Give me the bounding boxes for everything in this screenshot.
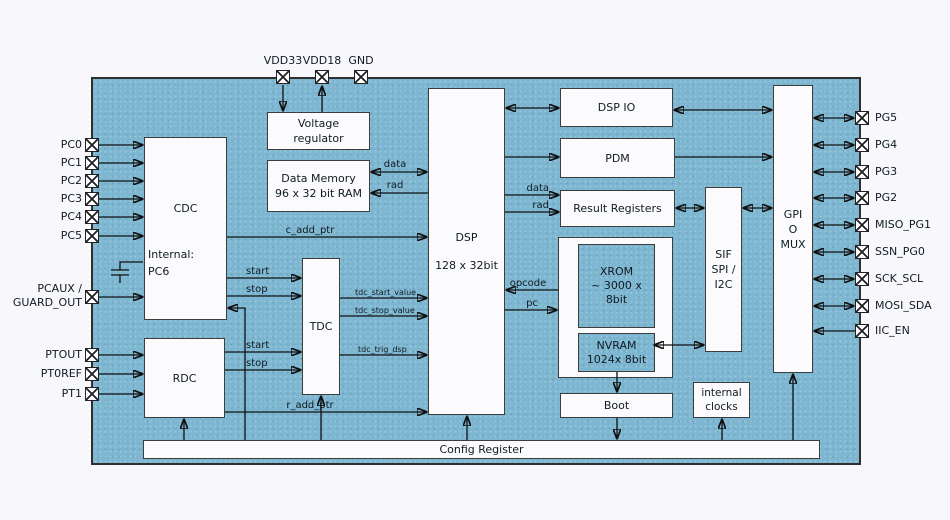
pin-box-pc4-icon (85, 210, 99, 224)
pin-box-pc5-icon (85, 229, 99, 243)
pin-label-pg2: PG2 (875, 191, 897, 205)
pin-box-pg5-icon (855, 111, 869, 125)
signal-cdc-stop: stop (246, 284, 268, 295)
boot-block: Boot (560, 393, 673, 418)
gpio-mux-label-1: GPI (784, 207, 802, 222)
dsp-block: DSP 128 x 32bit (428, 88, 505, 415)
pin-label-ssn-pg0: SSN_PG0 (875, 245, 925, 259)
pin-label-pcaux-2: GUARD_OUT (2, 296, 82, 310)
sif-label-1: SIF (715, 247, 732, 262)
config-register-block: Config Register (143, 440, 820, 459)
pin-box-pcaux-icon (85, 290, 99, 304)
signal-tdc-trig-dsp: tdc_trig_dsp (358, 345, 407, 354)
pin-box-ptout-icon (85, 348, 99, 362)
cdc-block: CDC Internal: PC6 (144, 137, 227, 320)
sif-label-3: I2C (715, 277, 733, 292)
signal-opcode: opcode (504, 278, 552, 289)
voltage-regulator-label-2: regulator (293, 131, 343, 146)
rdc-label: RDC (173, 371, 197, 386)
signal-c-add-ptr: c_add_ptr (270, 225, 350, 236)
signal-tdc-start-value: tdc_start_value (355, 288, 416, 297)
data-memory-block: Data Memory 96 x 32 bit RAM (267, 160, 370, 212)
data-memory-label-1: Data Memory (281, 171, 356, 186)
signal-rdc-start: start (246, 340, 269, 351)
pdm-block: PDM (560, 138, 675, 178)
config-register-label: Config Register (439, 442, 523, 457)
nvram-block: NVRAM 1024x 8bit (578, 333, 655, 372)
cdc-internal-line-1: Internal: (148, 246, 229, 263)
dsp-size-label: 128 x 32bit (435, 258, 498, 273)
dsp-label: DSP (455, 230, 477, 245)
gpio-mux-block: GPI O MUX (773, 85, 813, 373)
pin-label-pg4: PG4 (875, 138, 897, 152)
pin-box-pt1-icon (85, 387, 99, 401)
dsp-io-block: DSP IO (560, 88, 673, 127)
sif-spi-i2c-block: SIF SPI / I2C (705, 187, 742, 352)
signal-rr-rad: rad (505, 200, 549, 211)
pin-box-pc2-icon (85, 174, 99, 188)
pin-label-iic-en: IIC_EN (875, 324, 910, 338)
nvram-label-2: 1024x 8bit (587, 353, 646, 367)
sif-label-2: SPI / (711, 262, 735, 277)
rdc-block: RDC (144, 338, 225, 418)
cdc-internal-line-2: PC6 (148, 263, 229, 280)
signal-mem-data: data (375, 159, 415, 170)
signal-rdc-stop: stop (246, 358, 268, 369)
pin-box-vdd33-icon (276, 70, 290, 84)
signal-r-add-ptr: r_add_ptr (270, 400, 350, 411)
xrom-label-3: 8bit (606, 293, 627, 307)
pin-label-pc4: PC4 (2, 210, 82, 224)
voltage-regulator-label-1: Voltage (298, 116, 339, 131)
block-diagram: Voltage regulator Data Memory 96 x 32 bi… (0, 0, 950, 520)
pin-box-pg2-icon (855, 191, 869, 205)
signal-pc: pc (512, 298, 552, 309)
pin-label-pc0: PC0 (2, 138, 82, 152)
pin-box-vdd18-icon (315, 70, 329, 84)
pin-label-miso-pg1: MISO_PG1 (875, 218, 931, 232)
pin-box-pc3-icon (85, 192, 99, 206)
boot-label: Boot (604, 398, 629, 413)
pin-box-pt0ref-icon (85, 367, 99, 381)
gpio-mux-label-2: O (789, 222, 798, 237)
signal-tdc-stop-value: tdc_stop_value (355, 306, 415, 315)
xrom-label-2: ~ 3000 x (591, 279, 642, 293)
pin-box-pc0-icon (85, 138, 99, 152)
pin-label-sck-scl: SCK_SCL (875, 272, 923, 286)
tdc-label: TDC (310, 319, 333, 334)
internal-clocks-label-2: clocks (705, 400, 737, 414)
pin-label-mosi-sda: MOSI_SDA (875, 299, 932, 313)
pin-box-pc1-icon (85, 156, 99, 170)
tdc-block: TDC (302, 258, 340, 395)
pin-box-iic-en-icon (855, 324, 869, 338)
pdm-label: PDM (605, 151, 630, 166)
pin-box-sck-scl-icon (855, 272, 869, 286)
pin-label-pt0ref: PT0REF (2, 367, 82, 381)
dsp-io-label: DSP IO (598, 100, 636, 115)
xrom-block: XROM ~ 3000 x 8bit (578, 244, 655, 328)
pin-box-pg3-icon (855, 165, 869, 179)
cdc-label: CDC (145, 201, 226, 216)
pin-label-pg3: PG3 (875, 165, 897, 179)
pin-label-pcaux-1: PCAUX / (2, 282, 82, 296)
pin-box-mosi-sda-icon (855, 299, 869, 313)
pin-box-ssn-pg0-icon (855, 245, 869, 259)
pin-label-pc5: PC5 (2, 229, 82, 243)
internal-clocks-block: internal clocks (693, 382, 750, 418)
pin-box-gnd-icon (354, 70, 368, 84)
signal-rr-data: data (505, 183, 549, 194)
pin-box-pg4-icon (855, 138, 869, 152)
cdc-internal-note: Internal: PC6 (148, 246, 229, 280)
signal-cdc-start: start (246, 266, 269, 277)
pin-label-pc1: PC1 (2, 156, 82, 170)
nvram-label-1: NVRAM (597, 339, 637, 353)
pin-label-pt1: PT1 (2, 387, 82, 401)
gpio-mux-label-3: MUX (780, 237, 805, 252)
pin-label-pc2: PC2 (2, 174, 82, 188)
xrom-label-1: XROM (600, 265, 633, 279)
data-memory-label-2: 96 x 32 bit RAM (275, 186, 362, 201)
pin-box-miso-pg1-icon (855, 218, 869, 232)
voltage-regulator-block: Voltage regulator (267, 112, 370, 150)
pin-label-gnd: GND (331, 54, 391, 68)
pin-label-pc3: PC3 (2, 192, 82, 206)
result-registers-block: Result Registers (560, 190, 675, 227)
result-registers-label: Result Registers (573, 201, 662, 216)
internal-clocks-label-1: internal (701, 386, 741, 400)
signal-mem-rad: rad (375, 180, 415, 191)
pin-label-pg5: PG5 (875, 111, 897, 125)
pin-label-ptout: PTOUT (2, 348, 82, 362)
